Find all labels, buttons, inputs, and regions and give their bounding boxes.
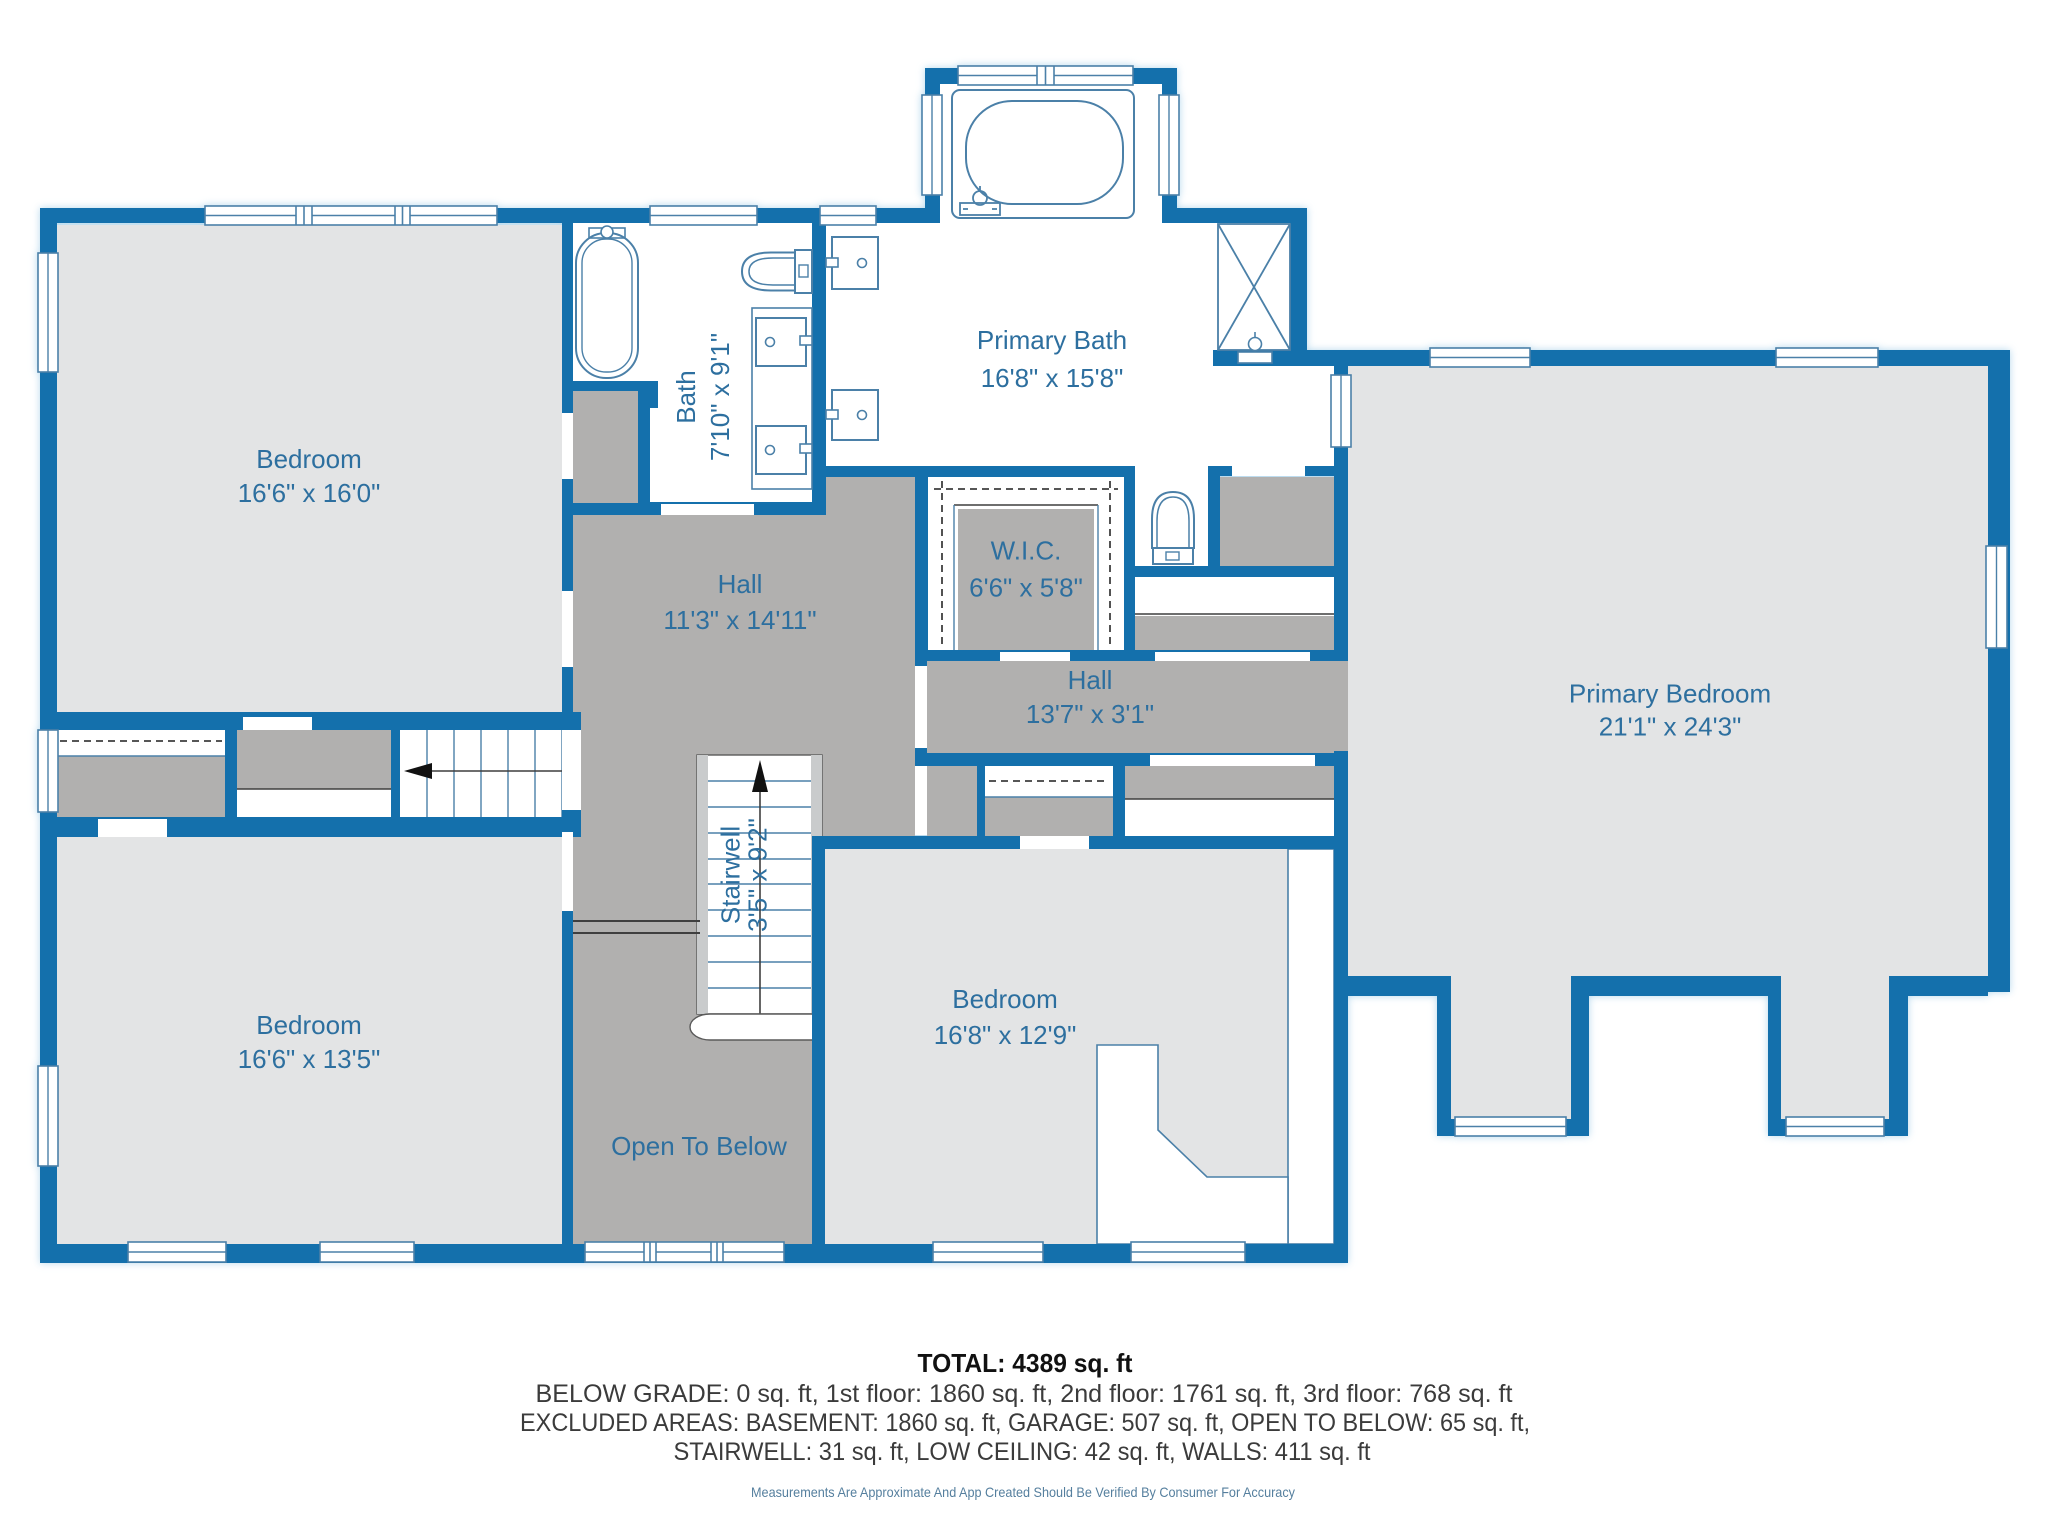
svg-text:Open To Below: Open To Below (611, 1131, 787, 1161)
svg-text:W.I.C.: W.I.C. (991, 536, 1062, 566)
svg-text:Primary Bath: Primary Bath (977, 325, 1127, 355)
svg-text:16'6" x 13'5": 16'6" x 13'5" (238, 1044, 381, 1074)
svg-text:Measurements Are Approximate A: Measurements Are Approximate And App Cre… (751, 1484, 1295, 1500)
svg-text:16'8" x 15'8": 16'8" x 15'8" (981, 363, 1124, 393)
svg-text:Bedroom: Bedroom (256, 444, 362, 474)
svg-text:Bedroom: Bedroom (256, 1010, 362, 1040)
svg-text:Bedroom: Bedroom (952, 984, 1058, 1014)
svg-text:Primary Bedroom: Primary Bedroom (1569, 679, 1771, 709)
svg-text:Stairwell: Stairwell (716, 826, 746, 924)
svg-text:Hall: Hall (1068, 665, 1113, 695)
svg-text:16'8" x 12'9": 16'8" x 12'9" (934, 1020, 1077, 1050)
svg-text:21'1" x 24'3": 21'1" x 24'3" (1599, 712, 1742, 742)
svg-text:STAIRWELL: 31 sq. ft, LOW CEIL: STAIRWELL: 31 sq. ft, LOW CEILING: 42 sq… (674, 1438, 1371, 1466)
svg-text:BELOW GRADE: 0 sq. ft, 1st flo: BELOW GRADE: 0 sq. ft, 1st floor: 1860 s… (536, 1380, 1513, 1408)
svg-text:13'7" x 3'1": 13'7" x 3'1" (1026, 699, 1154, 729)
svg-text:3'5" x 9'2": 3'5" x 9'2" (743, 818, 773, 932)
svg-text:11'3" x 14'11": 11'3" x 14'11" (663, 605, 816, 635)
svg-text:16'6" x 16'0": 16'6" x 16'0" (238, 478, 381, 508)
svg-text:7'10" x 9'1": 7'10" x 9'1" (705, 333, 735, 461)
svg-text:6'6" x 5'8": 6'6" x 5'8" (969, 573, 1083, 603)
svg-text:TOTAL: 4389 sq. ft: TOTAL: 4389 sq. ft (918, 1348, 1133, 1378)
svg-text:Hall: Hall (718, 569, 763, 599)
svg-text:Bath: Bath (671, 370, 701, 424)
svg-text:EXCLUDED AREAS: BASEMENT: 1860: EXCLUDED AREAS: BASEMENT: 1860 sq. ft, G… (520, 1409, 1530, 1437)
